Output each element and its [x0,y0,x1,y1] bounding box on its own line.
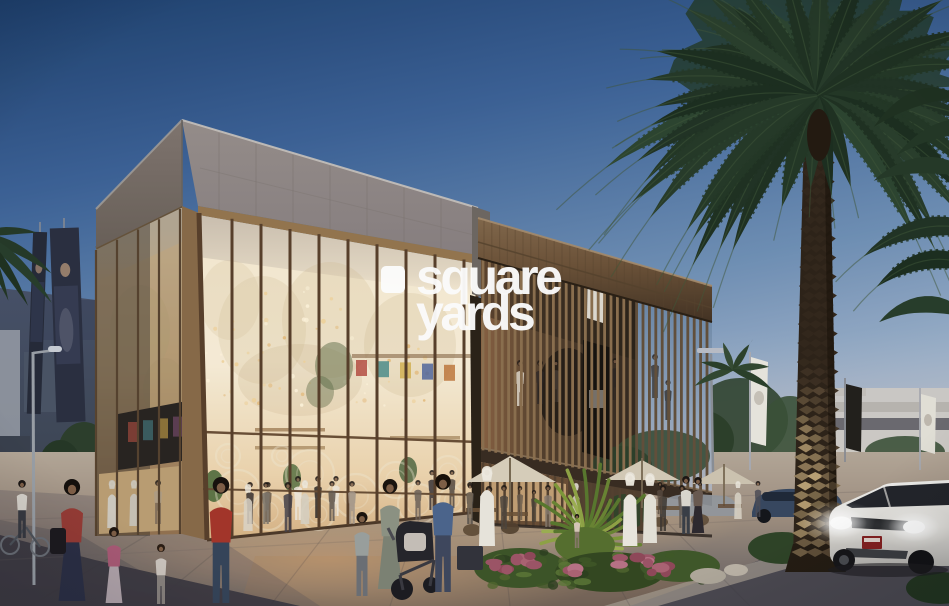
svg-text:yards: yards [416,285,534,341]
